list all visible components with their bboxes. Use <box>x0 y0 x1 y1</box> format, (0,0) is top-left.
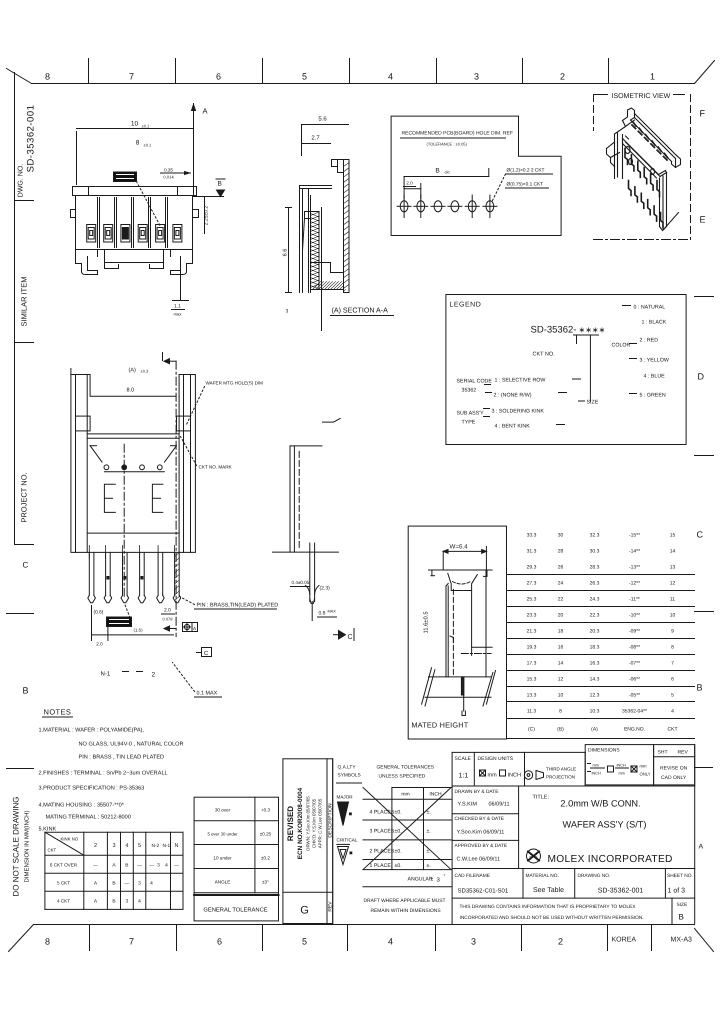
svg-text:ckt: ckt <box>445 170 451 175</box>
svg-text:9: 9 <box>671 629 674 635</box>
svg-text:-09**: -09** <box>629 629 640 635</box>
svg-text:Y.Soo.Kim 06/09/11: Y.Soo.Kim 06/09/11 <box>457 830 505 836</box>
svg-text:35362: 35362 <box>462 388 477 394</box>
svg-text:15.3: 15.3 <box>527 677 537 683</box>
svg-text:5: 5 <box>302 937 307 947</box>
svg-text:(2.3): (2.3) <box>320 586 331 592</box>
svg-text:21.3: 21.3 <box>527 629 537 635</box>
svg-text:-06**: -06** <box>629 677 640 683</box>
svg-text:CAD FILENAME: CAD FILENAME <box>455 873 490 879</box>
svg-text:3: 3 <box>474 72 479 82</box>
svg-text:ANGULAR: ANGULAR <box>408 877 433 883</box>
svg-text:8: 8 <box>45 72 50 82</box>
svg-text:molex: molex <box>529 855 538 859</box>
svg-text:0.1 MAX: 0.1 MAX <box>197 691 218 697</box>
svg-text:UNLESS SPECIFIED: UNLESS SPECIFIED <box>379 774 426 780</box>
svg-text:APPR: C.W.Lee 05/07/05: APPR: C.W.Lee 05/07/05 <box>318 798 323 848</box>
svg-text:(A) SECTION A-A: (A) SECTION A-A <box>332 307 389 315</box>
svg-text:THIS DRAWING CONTAINS INFORMAT: THIS DRAWING CONTAINS INFORMATION THAT I… <box>460 904 637 910</box>
svg-text:-15**: -15** <box>629 533 640 539</box>
svg-text:F: F <box>700 109 706 119</box>
svg-text:06/09/11: 06/09/11 <box>489 802 510 808</box>
svg-text:B: B <box>435 168 439 175</box>
svg-text:(A): (A) <box>591 727 598 733</box>
svg-text:mm: mm <box>593 764 599 768</box>
svg-text:SIZE: SIZE <box>587 400 599 406</box>
svg-text:2: 2 <box>152 672 156 679</box>
svg-text:INCH: INCH <box>508 773 521 779</box>
svg-text:5 CKT: 5 CKT <box>57 881 70 886</box>
svg-text:B: B <box>125 863 128 869</box>
svg-text:Ø(0.75)×0.1 CKT: Ø(0.75)×0.1 CKT <box>507 182 544 188</box>
svg-text:13.3: 13.3 <box>527 693 537 699</box>
svg-text:22.3: 22.3 <box>590 613 600 619</box>
svg-text:10 under: 10 under <box>213 856 232 861</box>
svg-text:PROJECT NO.: PROJECT NO. <box>20 472 29 522</box>
svg-text:max: max <box>174 312 183 317</box>
svg-text:1 of 3: 1 of 3 <box>668 887 686 895</box>
svg-text:18: 18 <box>558 629 564 635</box>
svg-text:5.KINK: 5.KINK <box>39 827 57 833</box>
svg-text:22: 22 <box>558 597 564 603</box>
svg-text:±0.2: ±0.2 <box>261 856 270 861</box>
svg-text:6.6: 6.6 <box>283 249 289 257</box>
svg-text:B: B <box>112 881 115 887</box>
svg-text:°: ° <box>444 874 446 880</box>
svg-text:26.3: 26.3 <box>590 581 600 587</box>
svg-text:26: 26 <box>558 565 564 571</box>
svg-text:33.3: 33.3 <box>527 533 537 539</box>
svg-text:Ø(1.2)×0.2 2 CKT: Ø(1.2)×0.2 2 CKT <box>507 168 545 174</box>
svg-text:mm: mm <box>640 764 647 769</box>
svg-text:—: — <box>93 864 98 869</box>
svg-text:-12**: -12** <box>629 581 640 587</box>
svg-text:30: 30 <box>558 533 564 539</box>
svg-text:C: C <box>23 561 29 570</box>
svg-text:SCALE: SCALE <box>455 756 472 762</box>
svg-text:MATERIAL NO.: MATERIAL NO. <box>526 873 559 879</box>
svg-text:2.0: 2.0 <box>406 181 413 186</box>
svg-text:4: 4 <box>388 937 393 947</box>
svg-text:7: 7 <box>129 937 134 947</box>
svg-text:19.3: 19.3 <box>527 645 537 651</box>
svg-text:TITLE:: TITLE: <box>533 795 550 801</box>
svg-text:See Table: See Table <box>533 886 564 894</box>
svg-text:MAX: MAX <box>328 610 337 614</box>
svg-text:GENERAL TOLERANCE: GENERAL TOLERANCE <box>203 907 267 914</box>
svg-text:MATING TERMINAL : 50212-8000: MATING TERMINAL : 50212-8000 <box>46 815 131 821</box>
svg-text:3: 3 <box>126 899 129 905</box>
svg-text:23.3: 23.3 <box>527 613 537 619</box>
svg-text:8: 8 <box>559 709 562 715</box>
svg-text:2 : RED: 2 : RED <box>640 338 659 344</box>
svg-text:15: 15 <box>670 533 676 539</box>
svg-text:ONLY: ONLY <box>640 772 651 777</box>
svg-text:4: 4 <box>125 843 128 849</box>
svg-text:INCH: INCH <box>617 764 627 768</box>
svg-text:KINK NO: KINK NO <box>61 837 79 842</box>
svg-text:2: 2 <box>560 72 565 82</box>
svg-text:6: 6 <box>671 677 674 683</box>
svg-text:INCH: INCH <box>429 792 442 798</box>
svg-text:C: C <box>348 634 353 641</box>
svg-text:4 : BLUE: 4 : BLUE <box>644 374 666 380</box>
svg-text:1.MATERIAL : WAFER : POLYAMIDE: 1.MATERIAL : WAFER : POLYAMIDE(PA), <box>39 727 145 734</box>
svg-text:∗∗∗∗: ∗∗∗∗ <box>579 326 606 335</box>
svg-text:3: 3 <box>286 309 289 315</box>
svg-text:14: 14 <box>558 661 564 667</box>
svg-text:0.079: 0.079 <box>162 617 173 622</box>
svg-text:3 : SOLDERING KINK: 3 : SOLDERING KINK <box>492 409 545 415</box>
svg-text:(B): (B) <box>557 727 564 733</box>
svg-text:WAFER MTG HOLE(S) DIM: WAFER MTG HOLE(S) DIM <box>206 381 264 386</box>
svg-text:10: 10 <box>558 693 564 699</box>
svg-text:3: 3 <box>112 843 115 849</box>
svg-text:B: B <box>218 181 222 188</box>
svg-text:N: N <box>175 843 179 849</box>
svg-text:REVISE ON: REVISE ON <box>660 766 688 772</box>
svg-text:C: C <box>204 650 209 657</box>
svg-text:SUB ASS'Y: SUB ASS'Y <box>457 411 485 417</box>
svg-text:10: 10 <box>670 613 676 619</box>
svg-text:-08**: -08** <box>629 645 640 651</box>
svg-text:N-1: N-1 <box>163 843 171 849</box>
svg-text:±0.3: ±0.3 <box>141 369 150 374</box>
svg-text:CRITICAL: CRITICAL <box>337 838 358 843</box>
svg-text:E: E <box>700 215 706 225</box>
svg-text:±0.25: ±0.25 <box>260 832 272 837</box>
svg-text:1 : SELECTIVE ROW: 1 : SELECTIVE ROW <box>495 378 546 384</box>
svg-text:A: A <box>203 107 208 116</box>
svg-text:2.FINISHES : TERMINAL : Sn/Pb: 2.FINISHES : TERMINAL : Sn/Pb 2~3um OVER… <box>39 770 168 777</box>
svg-text:±0.: ±0. <box>395 863 402 869</box>
svg-text:PIN : BRASS , TIN LEAD PLATED: PIN : BRASS , TIN LEAD PLATED <box>79 755 165 761</box>
svg-text:(C): (C) <box>528 727 535 733</box>
svg-text:B: B <box>112 899 115 905</box>
svg-text:SD-35362-: SD-35362- <box>531 325 577 336</box>
svg-text:16.3: 16.3 <box>590 661 600 667</box>
svg-text:5: 5 <box>302 72 307 82</box>
svg-text:0 : NATURAL: 0 : NATURAL <box>634 305 666 311</box>
svg-text:2: 2 <box>94 843 97 849</box>
svg-text:25.3: 25.3 <box>527 597 537 603</box>
svg-text:2.7: 2.7 <box>311 135 320 142</box>
svg-text:MX-A3: MX-A3 <box>671 937 693 944</box>
svg-text:27.3: 27.3 <box>527 581 537 587</box>
svg-text:(0.6): (0.6) <box>94 610 104 616</box>
svg-text:-07**: -07** <box>629 661 640 667</box>
svg-text:4: 4 <box>138 899 141 905</box>
svg-text:REMAIN WITHIN DIMENSIONS: REMAIN WITHIN DIMENSIONS <box>371 908 442 914</box>
svg-text:32.3: 32.3 <box>590 533 600 539</box>
svg-text:DIMENSIONS: DIMENSIONS <box>588 748 620 754</box>
svg-text:35362-04**: 35362-04** <box>622 709 647 715</box>
svg-text:3.PRODUCT SPECIFICATION : PS-3: 3.PRODUCT SPECIFICATION : PS-35363 <box>39 786 145 792</box>
svg-text:D: D <box>698 372 705 382</box>
svg-text:TYPE: TYPE <box>462 420 476 426</box>
svg-text:ECN NO.KOR2008-0004: ECN NO.KOR2008-0004 <box>297 787 304 859</box>
svg-text:LEGEND: LEGEND <box>450 302 482 309</box>
svg-text:4 CKT: 4 CKT <box>57 899 70 904</box>
svg-text:0.8: 0.8 <box>319 611 326 617</box>
svg-text:B: B <box>679 913 684 922</box>
svg-text:12: 12 <box>670 581 676 587</box>
svg-text:—: — <box>125 882 130 887</box>
svg-text:B: B <box>697 683 703 693</box>
svg-text:6 CKT OVER: 6 CKT OVER <box>50 863 78 868</box>
svg-text:DWG. NO.: DWG. NO. <box>18 164 25 197</box>
svg-text:DO NOT SCALE DRAWING: DO NOT SCALE DRAWING <box>12 796 21 896</box>
svg-text:INCORPORATED AND SHOULD NOT BE: INCORPORATED AND SHOULD NOT BE USED WITH… <box>460 915 644 921</box>
svg-text:8: 8 <box>671 645 674 651</box>
svg-text:4 PLACES: 4 PLACES <box>370 810 395 816</box>
svg-text:DESIGN UNITS: DESIGN UNITS <box>478 756 514 762</box>
svg-text:COLOR: COLOR <box>612 343 631 349</box>
svg-text:ANGLE: ANGLE <box>215 880 231 885</box>
svg-text:±.: ±. <box>427 863 431 869</box>
svg-text:W=6.4: W=6.4 <box>450 544 469 551</box>
svg-text:8.0: 8.0 <box>127 388 135 394</box>
svg-text:PROJECTION: PROJECTION <box>546 775 575 780</box>
svg-text:PIN : BRASS,TIN(LEAD) PLATED: PIN : BRASS,TIN(LEAD) PLATED <box>197 603 279 609</box>
svg-text:C: C <box>697 530 704 540</box>
svg-text:mm: mm <box>619 772 625 776</box>
svg-text:11.3: 11.3 <box>527 709 537 715</box>
svg-text:±: ± <box>431 877 434 883</box>
svg-text:4: 4 <box>388 72 393 82</box>
svg-text:Y.S.KIM: Y.S.KIM <box>458 802 478 808</box>
svg-text:THIRD ANGLE: THIRD ANGLE <box>546 767 576 772</box>
svg-text:A: A <box>699 844 704 851</box>
svg-text:SYMBOLS: SYMBOLS <box>338 773 361 779</box>
svg-text:±0.: ±0. <box>395 849 402 855</box>
svg-text:SIMILAR ITEM: SIMILAR ITEM <box>20 276 29 326</box>
svg-text:3: 3 <box>471 937 476 947</box>
svg-text:17.3: 17.3 <box>527 661 537 667</box>
svg-text:WAFER ASS'Y (S/T): WAFER ASS'Y (S/T) <box>563 820 647 830</box>
svg-text:28.3: 28.3 <box>590 565 600 571</box>
svg-text:N-1: N-1 <box>101 671 111 678</box>
svg-text:2: 2 <box>558 937 563 947</box>
svg-text:NO GLASS, UL94V-0 , NATURAL CO: NO GLASS, UL94V-0 , NATURAL COLOR <box>79 742 184 748</box>
svg-text:12: 12 <box>558 677 564 683</box>
svg-text:NOTES: NOTES <box>44 708 72 717</box>
svg-text:3 : YELLOW: 3 : YELLOW <box>640 358 669 364</box>
svg-text:14.3: 14.3 <box>590 677 600 683</box>
svg-text:5 over 30 under: 5 over 30 under <box>207 832 238 837</box>
svg-text:10.3: 10.3 <box>590 709 600 715</box>
svg-text:4 : BENT KINK: 4 : BENT KINK <box>495 424 531 430</box>
svg-text:±3°: ±3° <box>262 880 269 885</box>
svg-text:mm: mm <box>488 773 498 779</box>
svg-text:8: 8 <box>136 140 140 147</box>
svg-text:±.: ±. <box>427 829 431 835</box>
svg-text:2.0mm W/B CONN.: 2.0mm W/B CONN. <box>560 799 640 809</box>
svg-text:16: 16 <box>558 645 564 651</box>
svg-text:MOLEX INCORPORATED: MOLEX INCORPORATED <box>548 854 673 865</box>
svg-text:MATED HEIGHT: MATED HEIGHT <box>411 721 468 730</box>
svg-text:GENERAL TOLERANCES: GENERAL TOLERANCES <box>377 765 435 771</box>
svg-text:mm: mm <box>401 792 409 798</box>
svg-text:6: 6 <box>217 937 222 947</box>
svg-text:29.3: 29.3 <box>527 565 537 571</box>
svg-text:5.6: 5.6 <box>318 116 327 123</box>
svg-text:C.W.Lee 06/09/11: C.W.Lee 06/09/11 <box>457 857 501 863</box>
svg-text:1 : BLACK: 1 : BLACK <box>642 320 667 326</box>
svg-text:2.25±0.2: 2.25±0.2 <box>204 206 210 226</box>
svg-text:14: 14 <box>670 549 676 555</box>
svg-text:±0.: ±0. <box>395 829 402 835</box>
svg-text:(A): (A) <box>129 368 137 374</box>
svg-text:INCH: INCH <box>592 772 602 776</box>
svg-text:30 over: 30 over <box>215 808 231 813</box>
svg-text:0.014: 0.014 <box>163 175 174 180</box>
svg-text:B: B <box>23 686 29 696</box>
svg-text:12.3: 12.3 <box>590 693 600 699</box>
svg-text:11: 11 <box>670 597 675 603</box>
svg-text:24.3: 24.3 <box>590 597 600 603</box>
svg-text:-05**: -05** <box>629 693 640 699</box>
svg-text:28: 28 <box>558 549 564 555</box>
svg-text:±0.1: ±0.1 <box>144 143 153 148</box>
svg-text:REV: REV <box>678 750 689 756</box>
svg-text:0.35: 0.35 <box>164 168 173 173</box>
svg-text:SHT: SHT <box>658 750 668 756</box>
svg-text:10: 10 <box>131 121 139 128</box>
svg-text:5: 5 <box>671 693 674 699</box>
svg-text:DIMENSION IN MM(INCH): DIMENSION IN MM(INCH) <box>24 811 31 883</box>
svg-text:DRAFT WHERE APPLICABLE MUST: DRAFT WHERE APPLICABLE MUST <box>364 898 446 904</box>
svg-text:±0.: ±0. <box>395 810 402 816</box>
svg-text:SHEET NO.: SHEET NO. <box>667 873 693 879</box>
svg-text:(1.5): (1.5) <box>134 628 144 633</box>
svg-text:7: 7 <box>671 661 674 667</box>
svg-text:CHECKED BY & DATE: CHECKED BY & DATE <box>455 816 504 822</box>
svg-text:1:1: 1:1 <box>459 773 469 780</box>
svg-text:ISOMETRIC VIEW: ISOMETRIC VIEW <box>612 93 671 100</box>
svg-text:CKT NO.: CKT NO. <box>533 352 556 358</box>
svg-text:2 : (NONE R/W): 2 : (NONE R/W) <box>494 393 532 399</box>
svg-text:A: A <box>193 626 196 631</box>
svg-text:4.MATING HOUSING : 35507-**0: 4.MATING HOUSING : 35507-**0* <box>39 803 125 809</box>
svg-text:24: 24 <box>558 581 564 587</box>
svg-text:5: 5 <box>138 843 141 849</box>
svg-text:SIZE: SIZE <box>677 902 688 908</box>
svg-text:SD35362-C01-S01: SD35362-C01-S01 <box>458 888 509 895</box>
svg-text:-14**: -14** <box>629 549 640 555</box>
svg-text:6: 6 <box>216 72 221 82</box>
svg-text:SERIAL CODE: SERIAL CODE <box>457 379 493 385</box>
svg-text:REVISED: REVISED <box>286 806 295 841</box>
svg-text:4: 4 <box>150 881 153 887</box>
svg-text:CAD ONLY: CAD ONLY <box>661 775 687 781</box>
svg-text:CKT: CKT <box>48 848 57 853</box>
svg-text:-13**: -13** <box>629 565 640 571</box>
svg-text:G: G <box>300 905 309 917</box>
svg-text:SD-35362-001: SD-35362-001 <box>26 105 37 173</box>
svg-text:+0.3: +0.3 <box>261 808 271 813</box>
svg-text:1: 1 <box>650 72 655 82</box>
svg-text:7: 7 <box>129 72 134 82</box>
svg-text:31.3: 31.3 <box>527 549 537 555</box>
svg-text:—: — <box>137 864 142 869</box>
svg-text:13: 13 <box>670 565 676 571</box>
svg-text:4: 4 <box>165 863 168 869</box>
svg-text:DRWN: Y.Soo.Kim 05/07/05: DRWN: Y.Soo.Kim 05/07/05 <box>306 796 311 851</box>
svg-text:20: 20 <box>558 613 564 619</box>
svg-text:-10**: -10** <box>629 613 640 619</box>
svg-text:ENG.NO.: ENG.NO. <box>624 727 645 733</box>
svg-text:DRAWING NO.: DRAWING NO. <box>578 873 611 879</box>
svg-text:30.3: 30.3 <box>590 549 600 555</box>
svg-text:MAJOR: MAJOR <box>337 795 354 800</box>
svg-text:APPROVED BY & DATE: APPROVED BY & DATE <box>455 843 508 849</box>
svg-text:(TOLERANCE : ±0.05): (TOLERANCE : ±0.05) <box>427 142 468 147</box>
svg-text:CKT: CKT <box>668 727 678 733</box>
svg-text:11.6±0.5: 11.6±0.5 <box>423 611 430 633</box>
svg-text:CKT NO. MARK: CKT NO. MARK <box>199 465 233 470</box>
svg-text:3: 3 <box>157 863 160 869</box>
svg-text:±0.1: ±0.1 <box>142 124 151 129</box>
svg-text:-11**: -11** <box>629 597 640 603</box>
svg-text:20.3: 20.3 <box>590 629 600 635</box>
svg-text:—: — <box>149 864 154 869</box>
svg-text:SD-35362-001: SD-35362-001 <box>598 888 644 895</box>
svg-text:2.0: 2.0 <box>164 608 171 614</box>
svg-text:3: 3 <box>138 881 141 887</box>
svg-text:1 PLACE: 1 PLACE <box>370 863 392 869</box>
svg-text:18.3: 18.3 <box>590 645 600 651</box>
svg-text:CHK'D: Y.S.Kim 05/07/05: CHK'D: Y.S.Kim 05/07/05 <box>312 798 317 848</box>
svg-text:8: 8 <box>45 937 50 947</box>
svg-text:0.4±0.05: 0.4±0.05 <box>292 580 310 585</box>
svg-text:4: 4 <box>671 709 674 715</box>
svg-text:5 : GREEN: 5 : GREEN <box>640 393 666 399</box>
svg-text:DRAWN BY & DATE: DRAWN BY & DATE <box>455 789 499 795</box>
svg-text:KOREA: KOREA <box>612 937 637 944</box>
svg-text:1.1: 1.1 <box>174 304 181 310</box>
svg-text:3 PLACES: 3 PLACES <box>370 829 395 835</box>
svg-text:—: — <box>174 864 179 869</box>
svg-text:2.0: 2.0 <box>96 642 103 647</box>
svg-text:RECOMMENDED PCB(BOARD) HOLE DI: RECOMMENDED PCB(BOARD) HOLE DIM. REF <box>402 131 513 137</box>
svg-text:Q.A.LTY: Q.A.LTY <box>338 765 357 771</box>
svg-text:N-2: N-2 <box>152 843 160 849</box>
